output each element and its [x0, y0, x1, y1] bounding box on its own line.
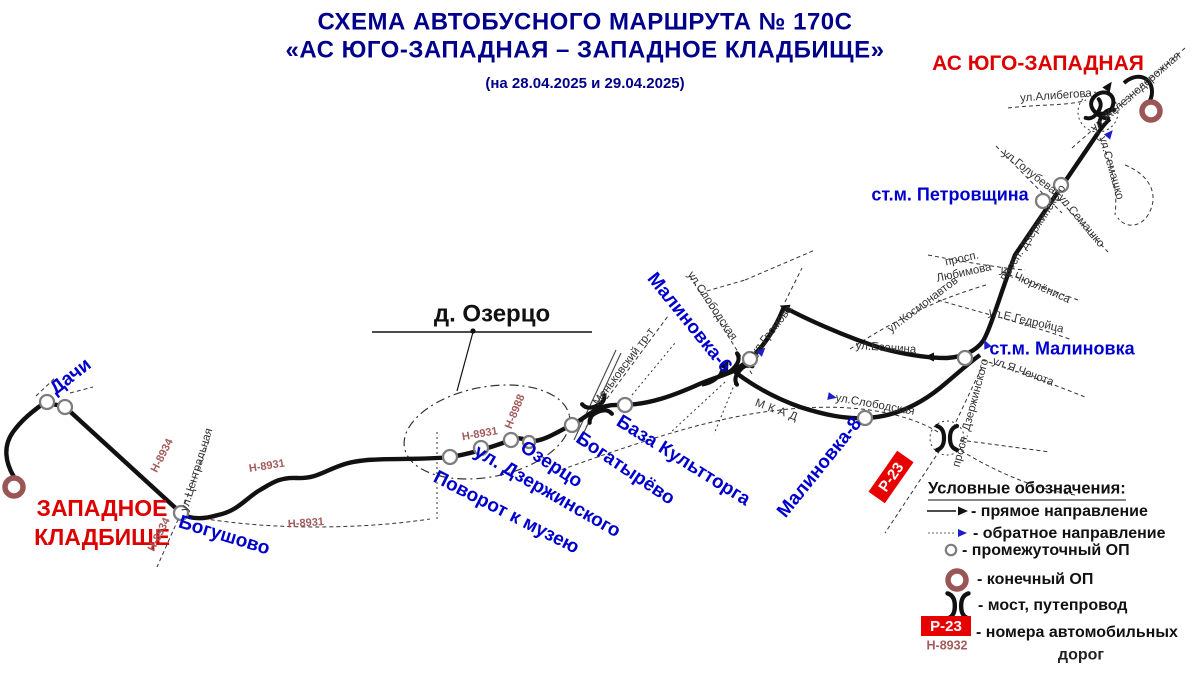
legend-h8932: Н-8932	[927, 639, 968, 652]
page-title-dates: (на 28.04.2025 и 29.04.2025)	[0, 76, 1170, 92]
legend-bridge: - мост, путепровод	[978, 597, 1127, 615]
legend-road-numbers-2: дорог	[1058, 648, 1104, 665]
label-terminal-as: АС ЮГО-ЗАПАДНАЯ	[932, 53, 1144, 75]
legend-reverse: - обратное направление	[973, 525, 1166, 543]
legend-intermediate: - промежуточный ОП	[962, 542, 1130, 560]
page-title-line1: СХЕМА АВТОБУСНОГО МАРШРУТА № 170С	[0, 9, 1170, 34]
legend-road-numbers-1: - номера автомобильных	[976, 624, 1178, 642]
legend-r23-sign: Р-23	[921, 616, 971, 636]
bus-route-scheme: СХЕМА АВТОБУСНОГО МАРШРУТА № 170С «АС ЮГ…	[0, 0, 1200, 676]
legend-icons	[927, 507, 969, 619]
label-stop-st-malinovka: ст.м. Малиновка	[989, 340, 1134, 359]
reverse-direction-arrows	[756, 128, 1116, 402]
legend-terminal: - конечный ОП	[977, 571, 1093, 589]
label-terminal-zapadnoe-1: ЗАПАДНОЕ	[37, 496, 168, 520]
label-stop-st-petrovshchina: ст.м. Петровщина	[871, 186, 1028, 205]
label-place-d-ozertso: д. Озерцо	[434, 301, 550, 326]
ozertso-callout	[372, 328, 592, 391]
legend-title: Условные обозначения:	[928, 480, 1126, 501]
legend-direct: - прямое направление	[971, 503, 1148, 521]
